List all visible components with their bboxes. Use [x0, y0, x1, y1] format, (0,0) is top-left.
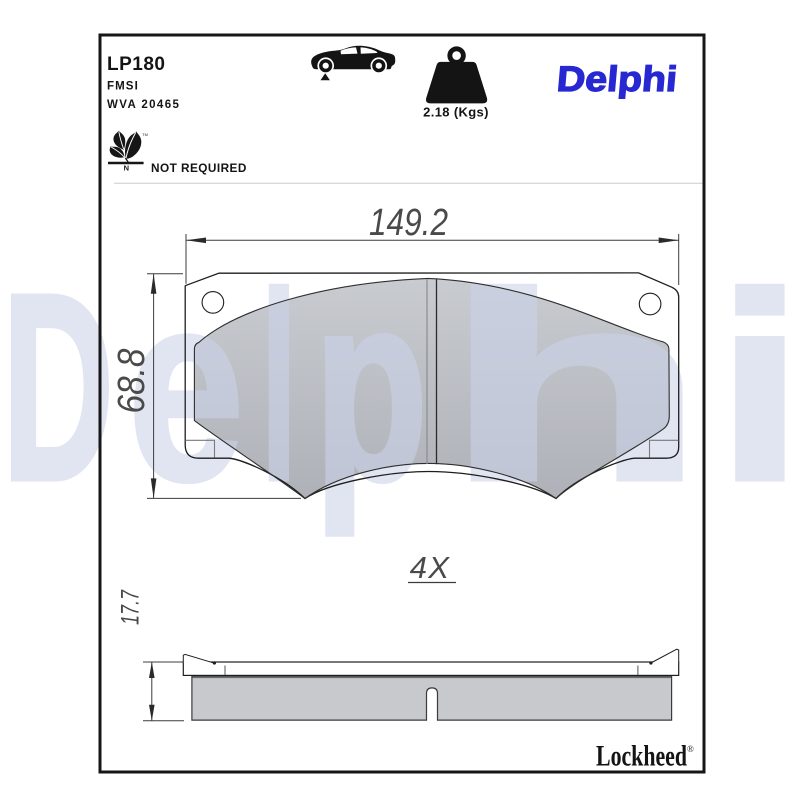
svg-text:l: l: [261, 239, 297, 536]
svg-text:p: p: [314, 239, 428, 537]
svg-text:®: ®: [687, 744, 694, 754]
svg-text:149.2: 149.2: [369, 202, 448, 244]
svg-text:17.7: 17.7: [117, 589, 145, 625]
svg-text:4X: 4X: [410, 550, 451, 585]
svg-text:Lockheed: Lockheed: [596, 740, 687, 773]
svg-text:N: N: [124, 164, 129, 173]
svg-text:68.8: 68.8: [111, 349, 153, 414]
svg-text:NOT REQUIRED: NOT REQUIRED: [151, 161, 247, 175]
svg-text:h: h: [445, 239, 705, 536]
svg-text:i: i: [716, 239, 800, 536]
svg-text:LP180: LP180: [107, 54, 165, 75]
svg-text:FMSI: FMSI: [107, 81, 139, 93]
svg-text:TM: TM: [142, 133, 147, 137]
svg-text:2.18 (Kgs): 2.18 (Kgs): [423, 105, 489, 120]
svg-text:WVA 20465: WVA 20465: [107, 99, 180, 111]
svg-text:Delphi: Delphi: [555, 59, 678, 99]
svg-text:D: D: [2, 239, 114, 536]
